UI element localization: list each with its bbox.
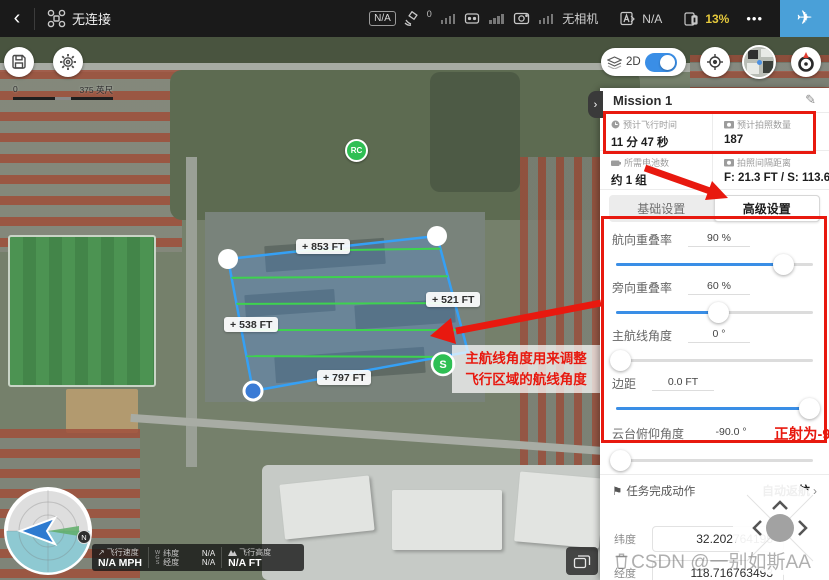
- telemetry-bar: ↗飞行速度 N/A MPH WGS 纬度N/A 经度N/A 飞行高度 N/A F…: [92, 544, 304, 571]
- map-trees: [430, 72, 520, 192]
- mission-settings-button[interactable]: [53, 47, 83, 77]
- settings-tabs: 基础设置 高级设置: [609, 195, 820, 222]
- slider-handle[interactable]: [799, 398, 820, 419]
- lat-value: N/A: [202, 549, 215, 558]
- more-menu-button[interactable]: •••: [736, 11, 773, 26]
- battery-icon: [683, 11, 698, 27]
- satellite-icon: [403, 11, 419, 26]
- chevron-right-icon: ›: [594, 99, 598, 111]
- gimbal-pitch-value[interactable]: -90.0 °: [700, 426, 762, 441]
- map-mode-control: 2D: [601, 48, 686, 76]
- clock-icon: [611, 120, 620, 129]
- save-mission-button[interactable]: [4, 47, 34, 77]
- plus-icon: +: [230, 319, 236, 331]
- battery-count-icon: [611, 159, 621, 167]
- app-window: S RC +853 FT +521 FT +538 FT +797 FT 主航线…: [0, 0, 829, 580]
- front-overlap-value[interactable]: 90 %: [688, 232, 750, 247]
- course-angle-value[interactable]: 0 °: [688, 328, 750, 343]
- map-football-field: [8, 235, 156, 387]
- side-overlap-value[interactable]: 60 %: [688, 280, 750, 295]
- rc-mode-value: N/A: [642, 12, 662, 26]
- edge-distance-label: +521 FT: [426, 292, 480, 307]
- plus-icon: +: [432, 294, 438, 306]
- rc-mode-icon: [619, 11, 635, 26]
- speed-value: N/A MPH: [98, 557, 142, 569]
- minimap-button[interactable]: [742, 45, 776, 79]
- edge-distance-label: +538 FT: [224, 317, 278, 332]
- slider-front-overlap: 航向重叠率 90 %: [600, 226, 829, 274]
- slider-margin: 边距 0.0 FT: [600, 370, 829, 418]
- tab-advanced-settings[interactable]: 高级设置: [714, 195, 821, 222]
- plus-icon: +: [302, 241, 308, 253]
- flight-time-value: 11 分 47 秒: [611, 134, 704, 150]
- map-mode-toggle[interactable]: [645, 53, 677, 72]
- slider-handle[interactable]: [708, 302, 729, 323]
- battery-percent: 13%: [705, 12, 729, 26]
- photo-count-icon: [724, 120, 734, 129]
- map-court: [66, 389, 138, 433]
- mission-title: Mission 1: [613, 93, 672, 108]
- interval-icon: [724, 158, 734, 167]
- nudge-center-button: [766, 514, 794, 542]
- gps-signal-bars: [441, 14, 456, 24]
- plus-icon: +: [323, 372, 329, 384]
- gimbal-annotation: 正射为-90°: [774, 423, 829, 444]
- slider-handle[interactable]: [610, 350, 631, 371]
- flight-mode-badge[interactable]: N/A: [369, 11, 396, 26]
- margin-value[interactable]: 0.0 FT: [652, 376, 714, 391]
- battery-count-value: 约 1 组: [611, 172, 704, 188]
- slider-side-overlap: 旁向重叠率 60 %: [600, 274, 829, 322]
- rc-location-marker: RC: [345, 139, 368, 162]
- compass-reset-button[interactable]: [791, 47, 821, 77]
- compass-icon: [795, 51, 817, 73]
- flag-icon: ⚑: [612, 484, 622, 498]
- slider-handle[interactable]: [610, 450, 631, 471]
- mission-stats: 预计飞行时间 11 分 47 秒 预计拍照数量 187 所需电池数 约 1 组: [600, 112, 829, 190]
- slider-gimbal-pitch: 云台俯仰角度 -90.0 ° 正射为-90°: [600, 418, 829, 470]
- rc-signal-bars: [489, 14, 504, 24]
- divider: [34, 8, 35, 30]
- stacked-maps-icon: [573, 554, 591, 569]
- map-mode-label: 2D: [626, 56, 641, 68]
- interval-value: F: 21.3 FT / S: 113.6 FT: [724, 172, 829, 184]
- gimbal-pitch-slider[interactable]: [616, 459, 813, 462]
- altitude-icon: [228, 548, 237, 556]
- attitude-compass[interactable]: N: [3, 486, 93, 576]
- lng-value: N/A: [202, 558, 215, 567]
- save-icon: [11, 54, 27, 70]
- map-layers-button[interactable]: [566, 547, 598, 575]
- locate-button[interactable]: [700, 47, 730, 77]
- speed-icon: ↗: [98, 548, 105, 557]
- edit-mission-button[interactable]: ✎: [805, 92, 816, 108]
- slider-course-angle: 主航线角度 0 °: [600, 322, 829, 370]
- video-signal-bars: [539, 14, 554, 24]
- map-scale-bar: 0375 英尺: [13, 84, 113, 100]
- photo-count-value: 187: [724, 134, 829, 146]
- side-overlap-slider[interactable]: [616, 311, 813, 314]
- satellite-count: 0: [427, 9, 432, 19]
- connection-status: 无连接: [72, 9, 111, 28]
- layers-icon: [607, 56, 622, 69]
- map-red-roofs: [520, 157, 602, 487]
- datum-label: WGS: [155, 551, 160, 566]
- panel-collapse-button[interactable]: ›: [588, 91, 603, 118]
- altitude-value: N/A FT: [228, 557, 271, 569]
- drone-icon: [47, 9, 66, 28]
- tab-basic-settings[interactable]: 基础设置: [609, 195, 714, 222]
- plane-icon: ✈: [797, 7, 813, 30]
- camera-icon: [513, 12, 530, 25]
- takeoff-button[interactable]: ✈: [780, 0, 829, 37]
- margin-slider[interactable]: [616, 407, 813, 410]
- remote-controller-icon: [464, 12, 480, 25]
- gear-icon: [59, 53, 77, 71]
- camera-status-label: 无相机: [562, 10, 598, 27]
- position-nudge-pad[interactable]: [732, 480, 828, 576]
- tutorial-annotation: 主航线角度用来调整 飞行区域的航线角度: [452, 345, 600, 393]
- edge-distance-label: +853 FT: [296, 239, 350, 254]
- slider-handle[interactable]: [773, 254, 794, 275]
- edge-distance-label: +797 FT: [317, 370, 371, 385]
- course-angle-slider[interactable]: [616, 359, 813, 362]
- crosshair-icon: [706, 53, 724, 71]
- status-bar: ‹ 无连接 N/A 0 无相机 N/A: [0, 0, 829, 37]
- front-overlap-slider[interactable]: [616, 263, 813, 266]
- north-indicator: N: [81, 533, 86, 542]
- back-button[interactable]: ‹: [0, 7, 34, 30]
